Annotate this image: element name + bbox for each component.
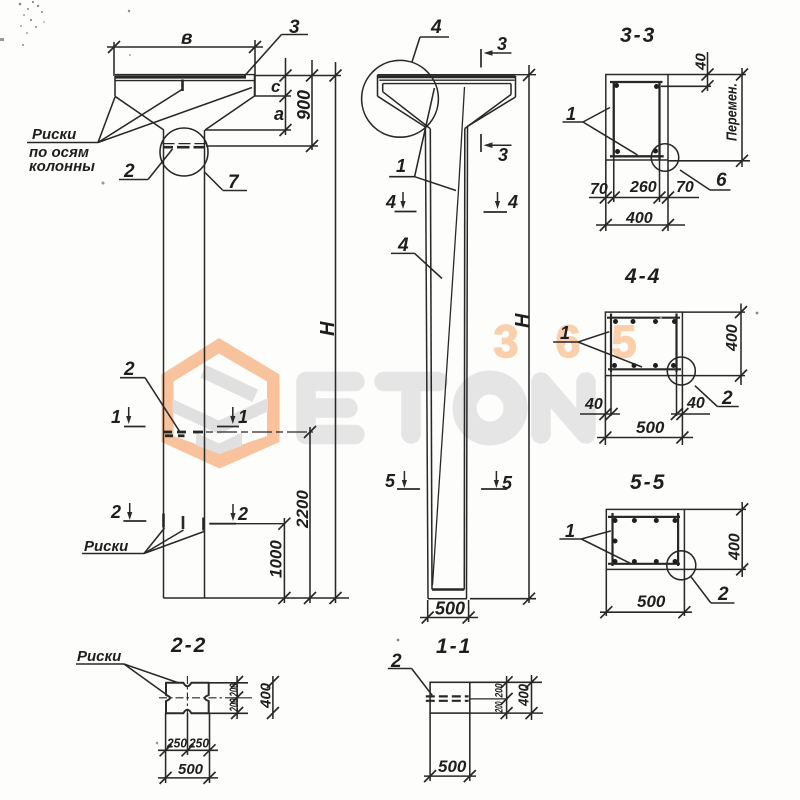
svg-text:70: 70 <box>590 181 608 198</box>
svg-text:260: 260 <box>629 179 657 196</box>
svg-text:500: 500 <box>178 761 204 778</box>
svg-text:500: 500 <box>438 757 467 776</box>
svg-text:400: 400 <box>724 324 741 352</box>
svg-text:900: 900 <box>294 90 314 120</box>
svg-text:Перемен.: Перемен. <box>725 83 741 141</box>
svg-text:500: 500 <box>435 599 465 619</box>
svg-text:1: 1 <box>565 521 575 541</box>
svg-text:1-1: 1-1 <box>436 635 472 658</box>
svg-text:500: 500 <box>636 418 665 437</box>
svg-text:400: 400 <box>516 683 533 706</box>
svg-text:2: 2 <box>123 359 135 380</box>
svg-text:2200: 2200 <box>293 490 312 529</box>
svg-text:5: 5 <box>502 473 513 493</box>
svg-text:400: 400 <box>727 533 744 561</box>
svg-text:4: 4 <box>507 192 518 212</box>
svg-text:200: 200 <box>229 683 241 697</box>
svg-text:500: 500 <box>637 592 666 611</box>
svg-text:1: 1 <box>238 407 248 427</box>
svg-text:3-3: 3-3 <box>620 24 656 47</box>
svg-text:Н: Н <box>317 321 339 336</box>
svg-text:250: 250 <box>188 737 209 751</box>
svg-text:2-2: 2-2 <box>170 634 207 657</box>
svg-text:200: 200 <box>229 698 241 712</box>
svg-text:40: 40 <box>686 395 705 412</box>
svg-text:3: 3 <box>497 34 507 54</box>
svg-text:4-4: 4-4 <box>624 265 661 288</box>
svg-text:Риски: Риски <box>77 648 121 665</box>
svg-text:1: 1 <box>111 407 121 427</box>
svg-text:400: 400 <box>258 682 275 709</box>
svg-text:1000: 1000 <box>267 540 286 578</box>
svg-text:200: 200 <box>494 683 506 698</box>
svg-text:5-5: 5-5 <box>630 471 666 494</box>
svg-text:c: c <box>271 77 281 96</box>
svg-text:Риски: Риски <box>84 538 128 555</box>
svg-text:Н: Н <box>512 313 534 328</box>
svg-text:70: 70 <box>676 179 694 196</box>
svg-text:250: 250 <box>166 737 187 751</box>
svg-text:200: 200 <box>494 701 506 713</box>
svg-text:4: 4 <box>430 17 442 38</box>
svg-text:2: 2 <box>237 504 248 524</box>
svg-text:1: 1 <box>566 104 576 124</box>
svg-text:6: 6 <box>716 170 727 191</box>
svg-text:3: 3 <box>498 145 508 165</box>
svg-text:4: 4 <box>385 192 396 212</box>
svg-text:40: 40 <box>693 53 710 71</box>
svg-text:1: 1 <box>560 323 570 343</box>
svg-text:5: 5 <box>385 471 396 491</box>
svg-text:2: 2 <box>110 502 121 522</box>
svg-text:2: 2 <box>717 584 729 605</box>
svg-text:40: 40 <box>584 396 603 413</box>
svg-text:в: в <box>181 28 192 49</box>
svg-text:1: 1 <box>396 156 406 176</box>
svg-text:a: a <box>274 104 284 124</box>
svg-text:Риски: Риски <box>32 126 76 143</box>
svg-text:400: 400 <box>625 210 653 227</box>
svg-text:колонны: колонны <box>29 158 95 175</box>
